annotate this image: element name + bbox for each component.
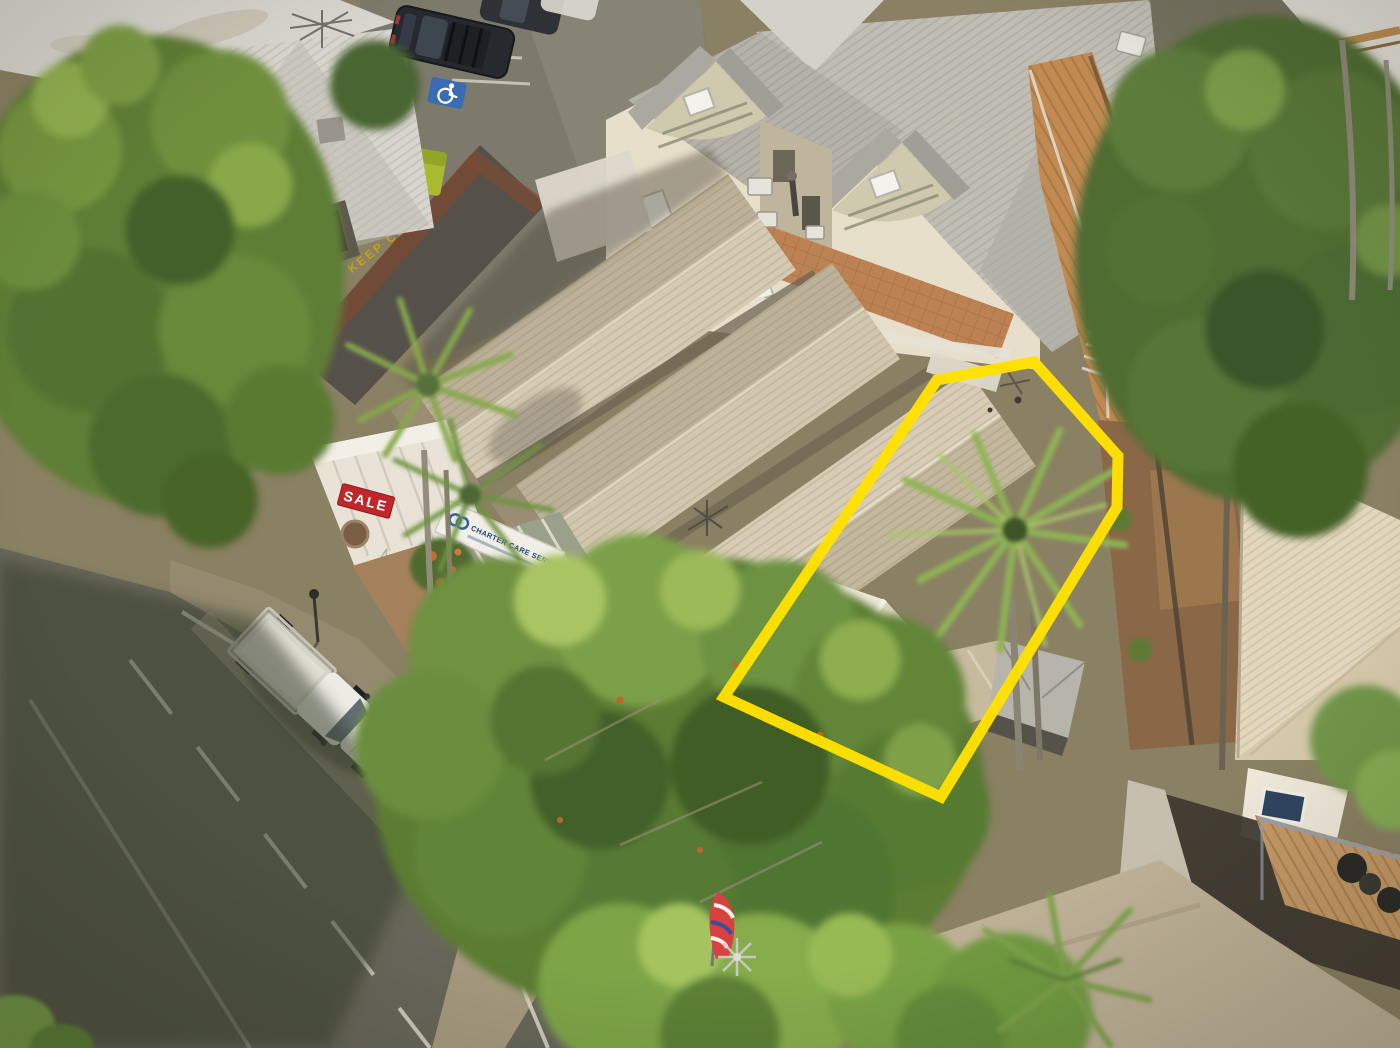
vignette bbox=[0, 0, 1400, 1048]
aerial-photo-canvas: KEEP CLEAR bbox=[0, 0, 1400, 1048]
aerial-property-photo: KEEP CLEAR bbox=[0, 0, 1400, 1048]
